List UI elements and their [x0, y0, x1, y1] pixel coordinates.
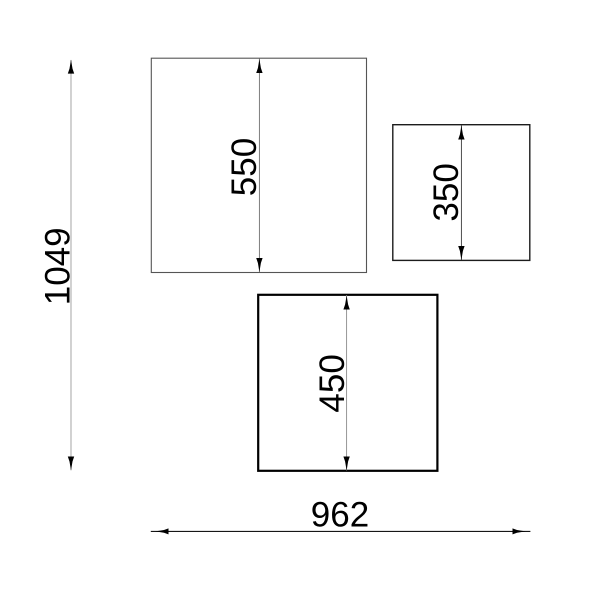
svg-text:962: 962	[311, 495, 369, 534]
svg-text:450: 450	[313, 354, 352, 412]
svg-text:350: 350	[427, 163, 466, 221]
svg-text:1049: 1049	[38, 227, 77, 305]
svg-text:550: 550	[225, 138, 264, 196]
